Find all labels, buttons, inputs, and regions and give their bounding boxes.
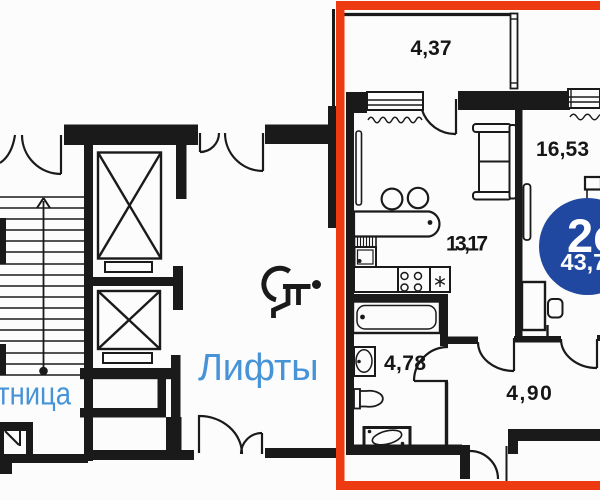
svg-text:4,90: 4,90 — [506, 382, 552, 405]
svg-text:43,76: 43,76 — [561, 249, 600, 275]
svg-text:16,53: 16,53 — [536, 138, 589, 161]
svg-text:4,78: 4,78 — [384, 352, 426, 375]
svg-text:4,37: 4,37 — [411, 37, 452, 60]
svg-text:Лифты: Лифты — [198, 347, 319, 389]
svg-text:13,17: 13,17 — [446, 233, 488, 256]
svg-text:тница: тница — [0, 376, 71, 412]
